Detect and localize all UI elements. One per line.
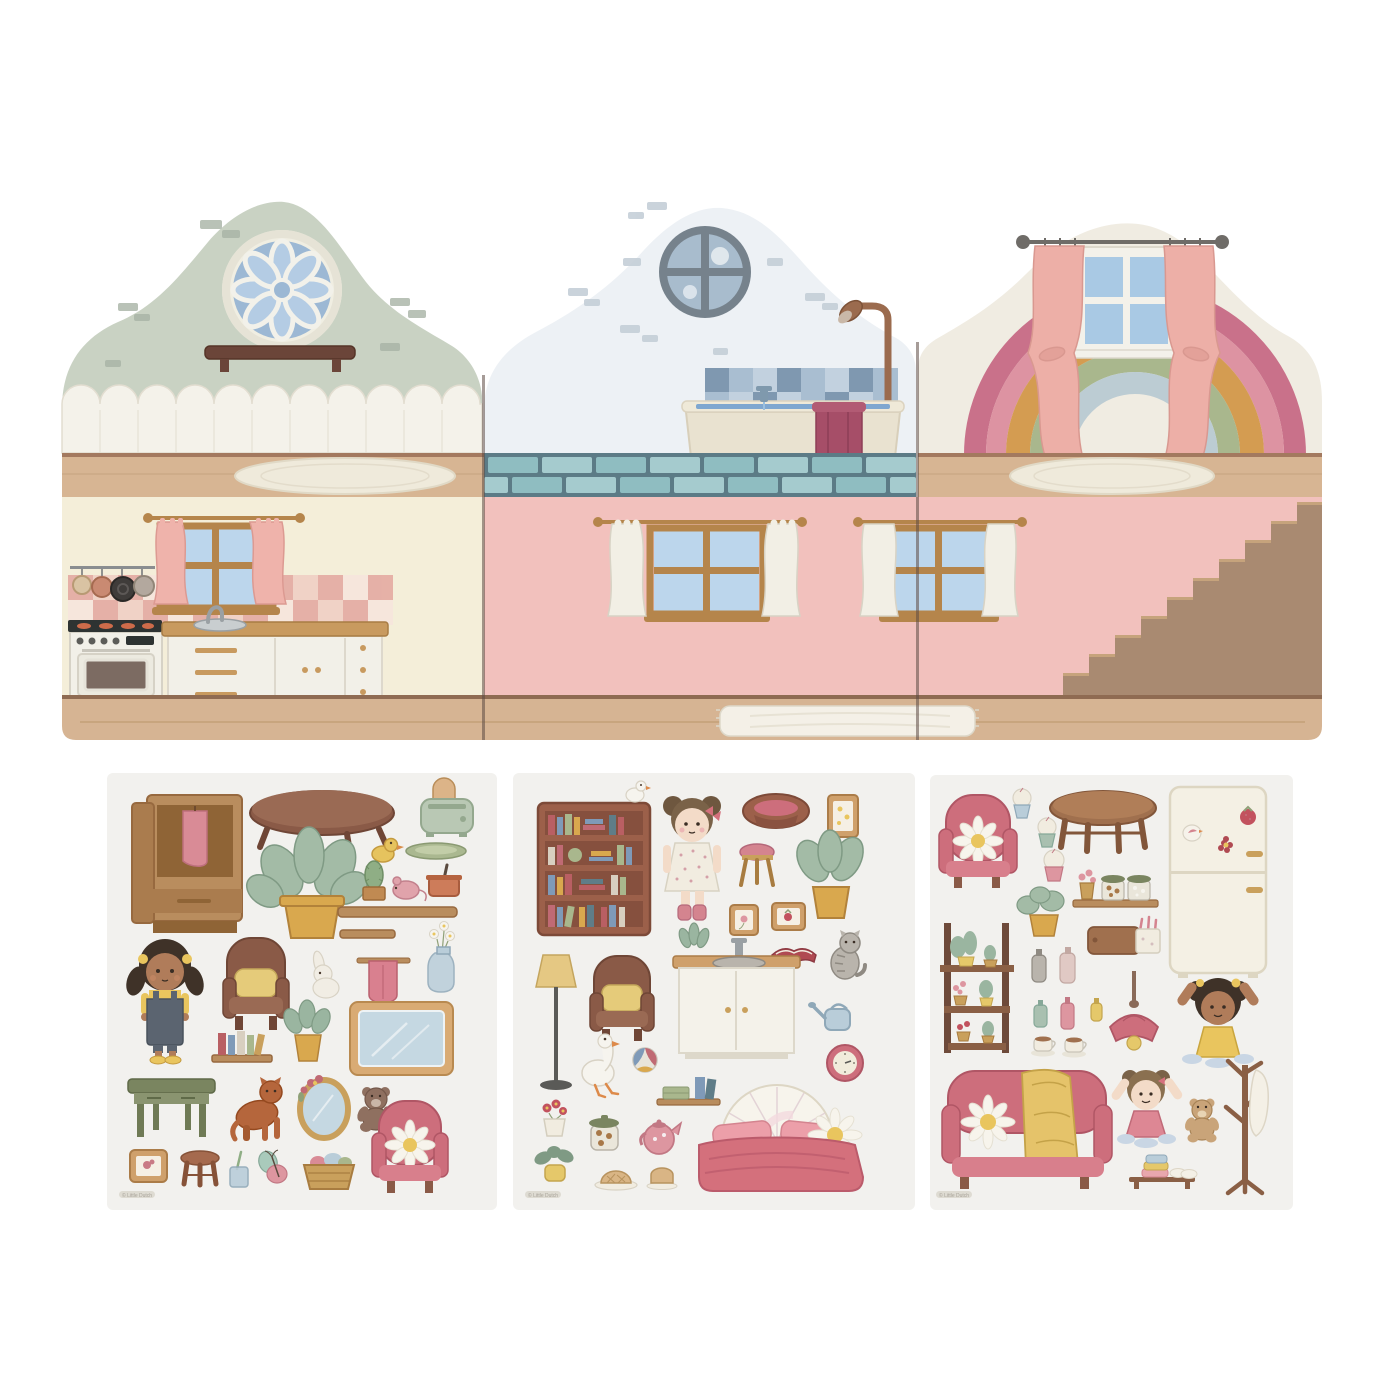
watermark: © Little Dutch — [939, 1192, 969, 1199]
teal-brick-band — [484, 453, 916, 497]
sticker-bookcase-with-goose — [538, 781, 651, 935]
picket-wainscot — [62, 385, 482, 453]
window-white-right — [853, 517, 1027, 622]
window-white-left — [593, 517, 807, 622]
sticker-sheet-1: © Little Dutch — [107, 773, 497, 1210]
sticker-fridge-with-magnets — [1170, 787, 1266, 978]
sticker-ball — [633, 1048, 657, 1072]
sticker-pink-armchair-daisy-2 — [939, 795, 1017, 888]
fringed-rug — [716, 706, 979, 736]
sticker-wall-clock — [827, 1045, 863, 1081]
sticker-pink-sofa-blanket — [942, 1070, 1112, 1189]
panel-left — [62, 202, 484, 713]
kitchen-window — [143, 513, 305, 615]
sticker-wall-shelf — [338, 907, 457, 917]
bottom-floor — [62, 695, 1322, 740]
sticker-sheet-3: © Little Dutch — [930, 775, 1293, 1210]
watermark-pill: © Little Dutch — [936, 1191, 972, 1199]
sticker-cookie-jar — [589, 1115, 619, 1150]
sticker-pet-basket — [743, 794, 809, 829]
sticker-serving-tray — [406, 843, 466, 859]
sticker-stool — [181, 1151, 219, 1185]
sticker-picture-frame-bird — [130, 1150, 167, 1182]
bath-towel — [812, 402, 866, 460]
fold-line-2 — [916, 342, 919, 740]
watermark: © Little Dutch — [122, 1192, 152, 1199]
rosette-window — [222, 230, 342, 350]
sticker-sheet-2: © Little Dutch — [513, 773, 915, 1210]
watermark-pill: © Little Dutch — [119, 1191, 155, 1199]
dollhouse-backdrop — [60, 170, 1325, 745]
sticker-picture-frame-strawberry — [772, 903, 805, 930]
kitchen-counter — [162, 607, 388, 707]
fold-line-1 — [482, 375, 485, 740]
upper-floor-left — [62, 453, 484, 497]
sticker-wardrobe — [132, 795, 242, 933]
watermark: © Little Dutch — [528, 1192, 558, 1199]
product-image: © Little Dutch — [0, 0, 1400, 1400]
sticker-mirror-board — [350, 1002, 453, 1075]
sticker-wall-shelf-small — [340, 930, 395, 938]
sticker-pink-armchair-daisy — [372, 1101, 448, 1193]
sticker-cactus — [363, 861, 385, 900]
upper-floor-right — [918, 453, 1322, 497]
panel-middle — [484, 202, 916, 497]
porthole-window — [659, 226, 751, 318]
sticker-picture-frame-flower — [730, 905, 758, 935]
watermark-pill: © Little Dutch — [525, 1191, 561, 1199]
